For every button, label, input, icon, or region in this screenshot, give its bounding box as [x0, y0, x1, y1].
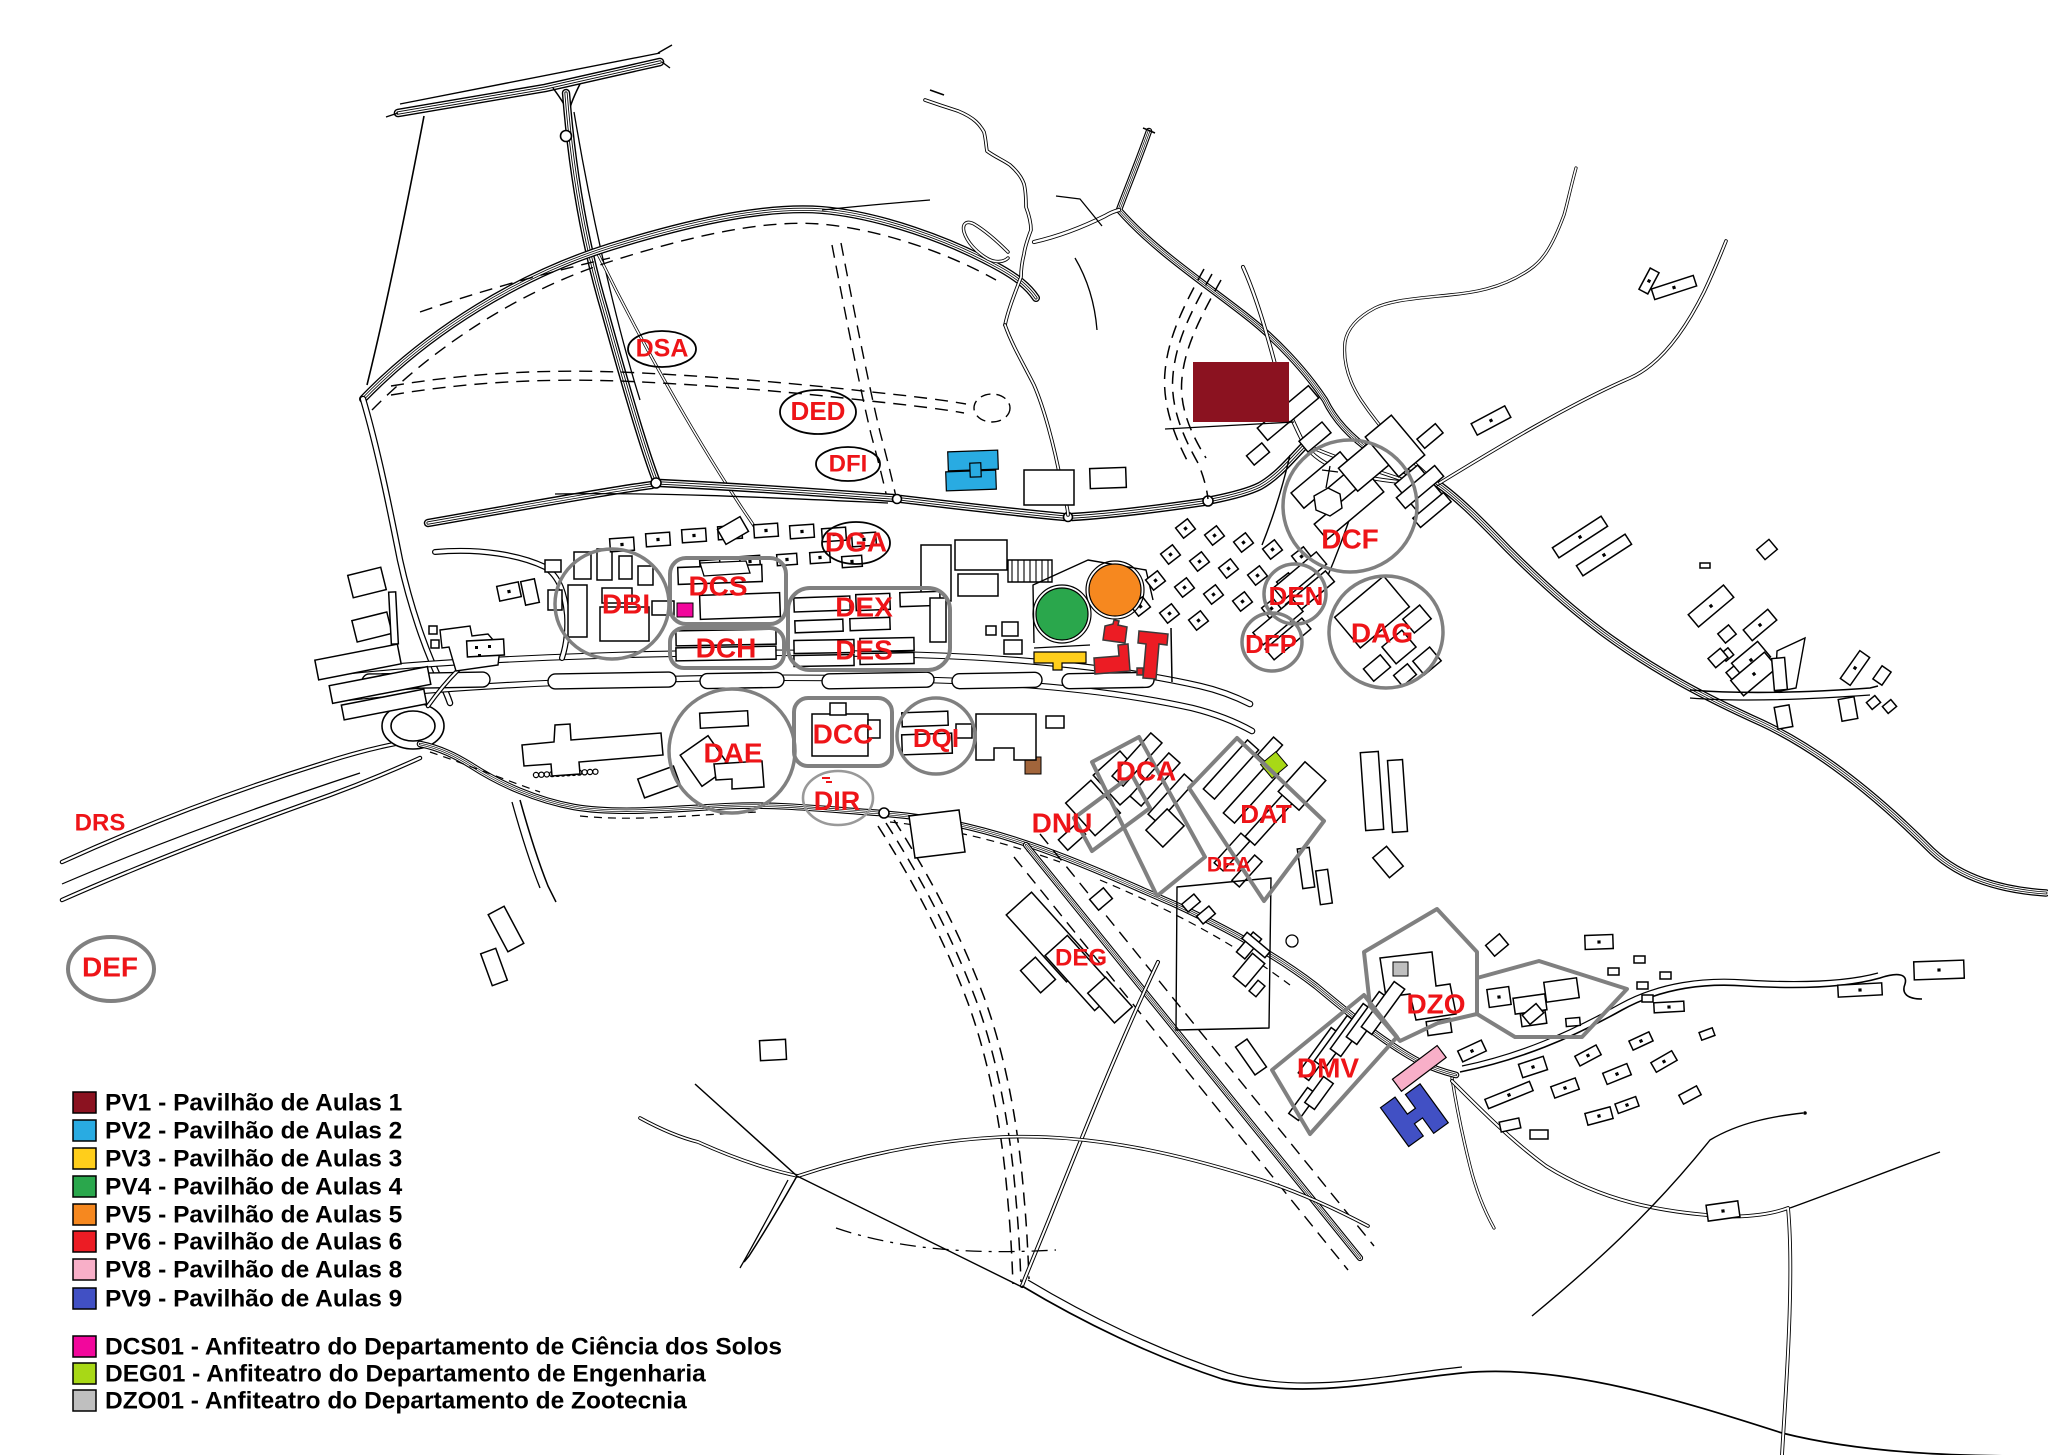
- svg-text:DAT: DAT: [1240, 799, 1292, 829]
- svg-text:PV8 - Pavilhão de Aulas 8: PV8 - Pavilhão de Aulas 8: [105, 1256, 402, 1283]
- svg-text:DCA: DCA: [1116, 755, 1177, 786]
- svg-text:PV5 - Pavilhão de Aulas 5: PV5 - Pavilhão de Aulas 5: [105, 1201, 402, 1228]
- svg-text:DGA: DGA: [825, 526, 887, 557]
- svg-text:DEX: DEX: [835, 591, 893, 622]
- svg-text:DEF: DEF: [82, 951, 138, 982]
- svg-text:DES: DES: [835, 634, 893, 665]
- svg-text:DCS: DCS: [688, 570, 747, 601]
- svg-text:DAG: DAG: [1351, 617, 1413, 648]
- svg-text:DZO: DZO: [1406, 988, 1465, 1019]
- svg-text:DEN: DEN: [1269, 581, 1324, 611]
- svg-text:DAE: DAE: [703, 737, 762, 768]
- svg-text:DMV: DMV: [1297, 1052, 1360, 1083]
- svg-text:DCF: DCF: [1321, 523, 1379, 554]
- svg-text:DIR: DIR: [814, 786, 861, 816]
- svg-text:DZO01 - Anfiteatro do Departam: DZO01 - Anfiteatro do Departamento de Zo…: [105, 1387, 687, 1414]
- svg-text:PV1 - Pavilhão de Aulas 1: PV1 - Pavilhão de Aulas 1: [105, 1089, 402, 1116]
- svg-text:DFP: DFP: [1245, 629, 1297, 659]
- svg-text:DNU: DNU: [1032, 807, 1093, 838]
- svg-text:DRS: DRS: [75, 809, 126, 836]
- svg-text:DQI: DQI: [913, 723, 959, 753]
- svg-text:DCS01 - Anfiteatro do Departam: DCS01 - Anfiteatro do Departamento de Ci…: [105, 1333, 782, 1360]
- svg-text:PV2 - Pavilhão de Aulas 2: PV2 - Pavilhão de Aulas 2: [105, 1117, 402, 1144]
- svg-text:DEA: DEA: [1207, 854, 1251, 877]
- svg-text:DCH: DCH: [696, 632, 757, 663]
- svg-text:PV3 - Pavilhão de Aulas 3: PV3 - Pavilhão de Aulas 3: [105, 1145, 402, 1172]
- svg-text:DBI: DBI: [602, 588, 650, 619]
- svg-text:DSA: DSA: [636, 335, 689, 363]
- svg-text:DEG01 - Anfiteatro do Departam: DEG01 - Anfiteatro do Departamento de En…: [105, 1360, 706, 1387]
- svg-text:DCC: DCC: [813, 718, 874, 749]
- svg-text:PV9 - Pavilhão de Aulas 9: PV9 - Pavilhão de Aulas 9: [105, 1285, 402, 1312]
- svg-text:PV4 - Pavilhão de Aulas 4: PV4 - Pavilhão de Aulas 4: [105, 1173, 403, 1200]
- svg-text:DFI: DFI: [829, 450, 868, 477]
- svg-text:DEG: DEG: [1055, 944, 1107, 971]
- svg-text:PV6 - Pavilhão de Aulas 6: PV6 - Pavilhão de Aulas 6: [105, 1228, 402, 1255]
- svg-text:DED: DED: [791, 396, 846, 426]
